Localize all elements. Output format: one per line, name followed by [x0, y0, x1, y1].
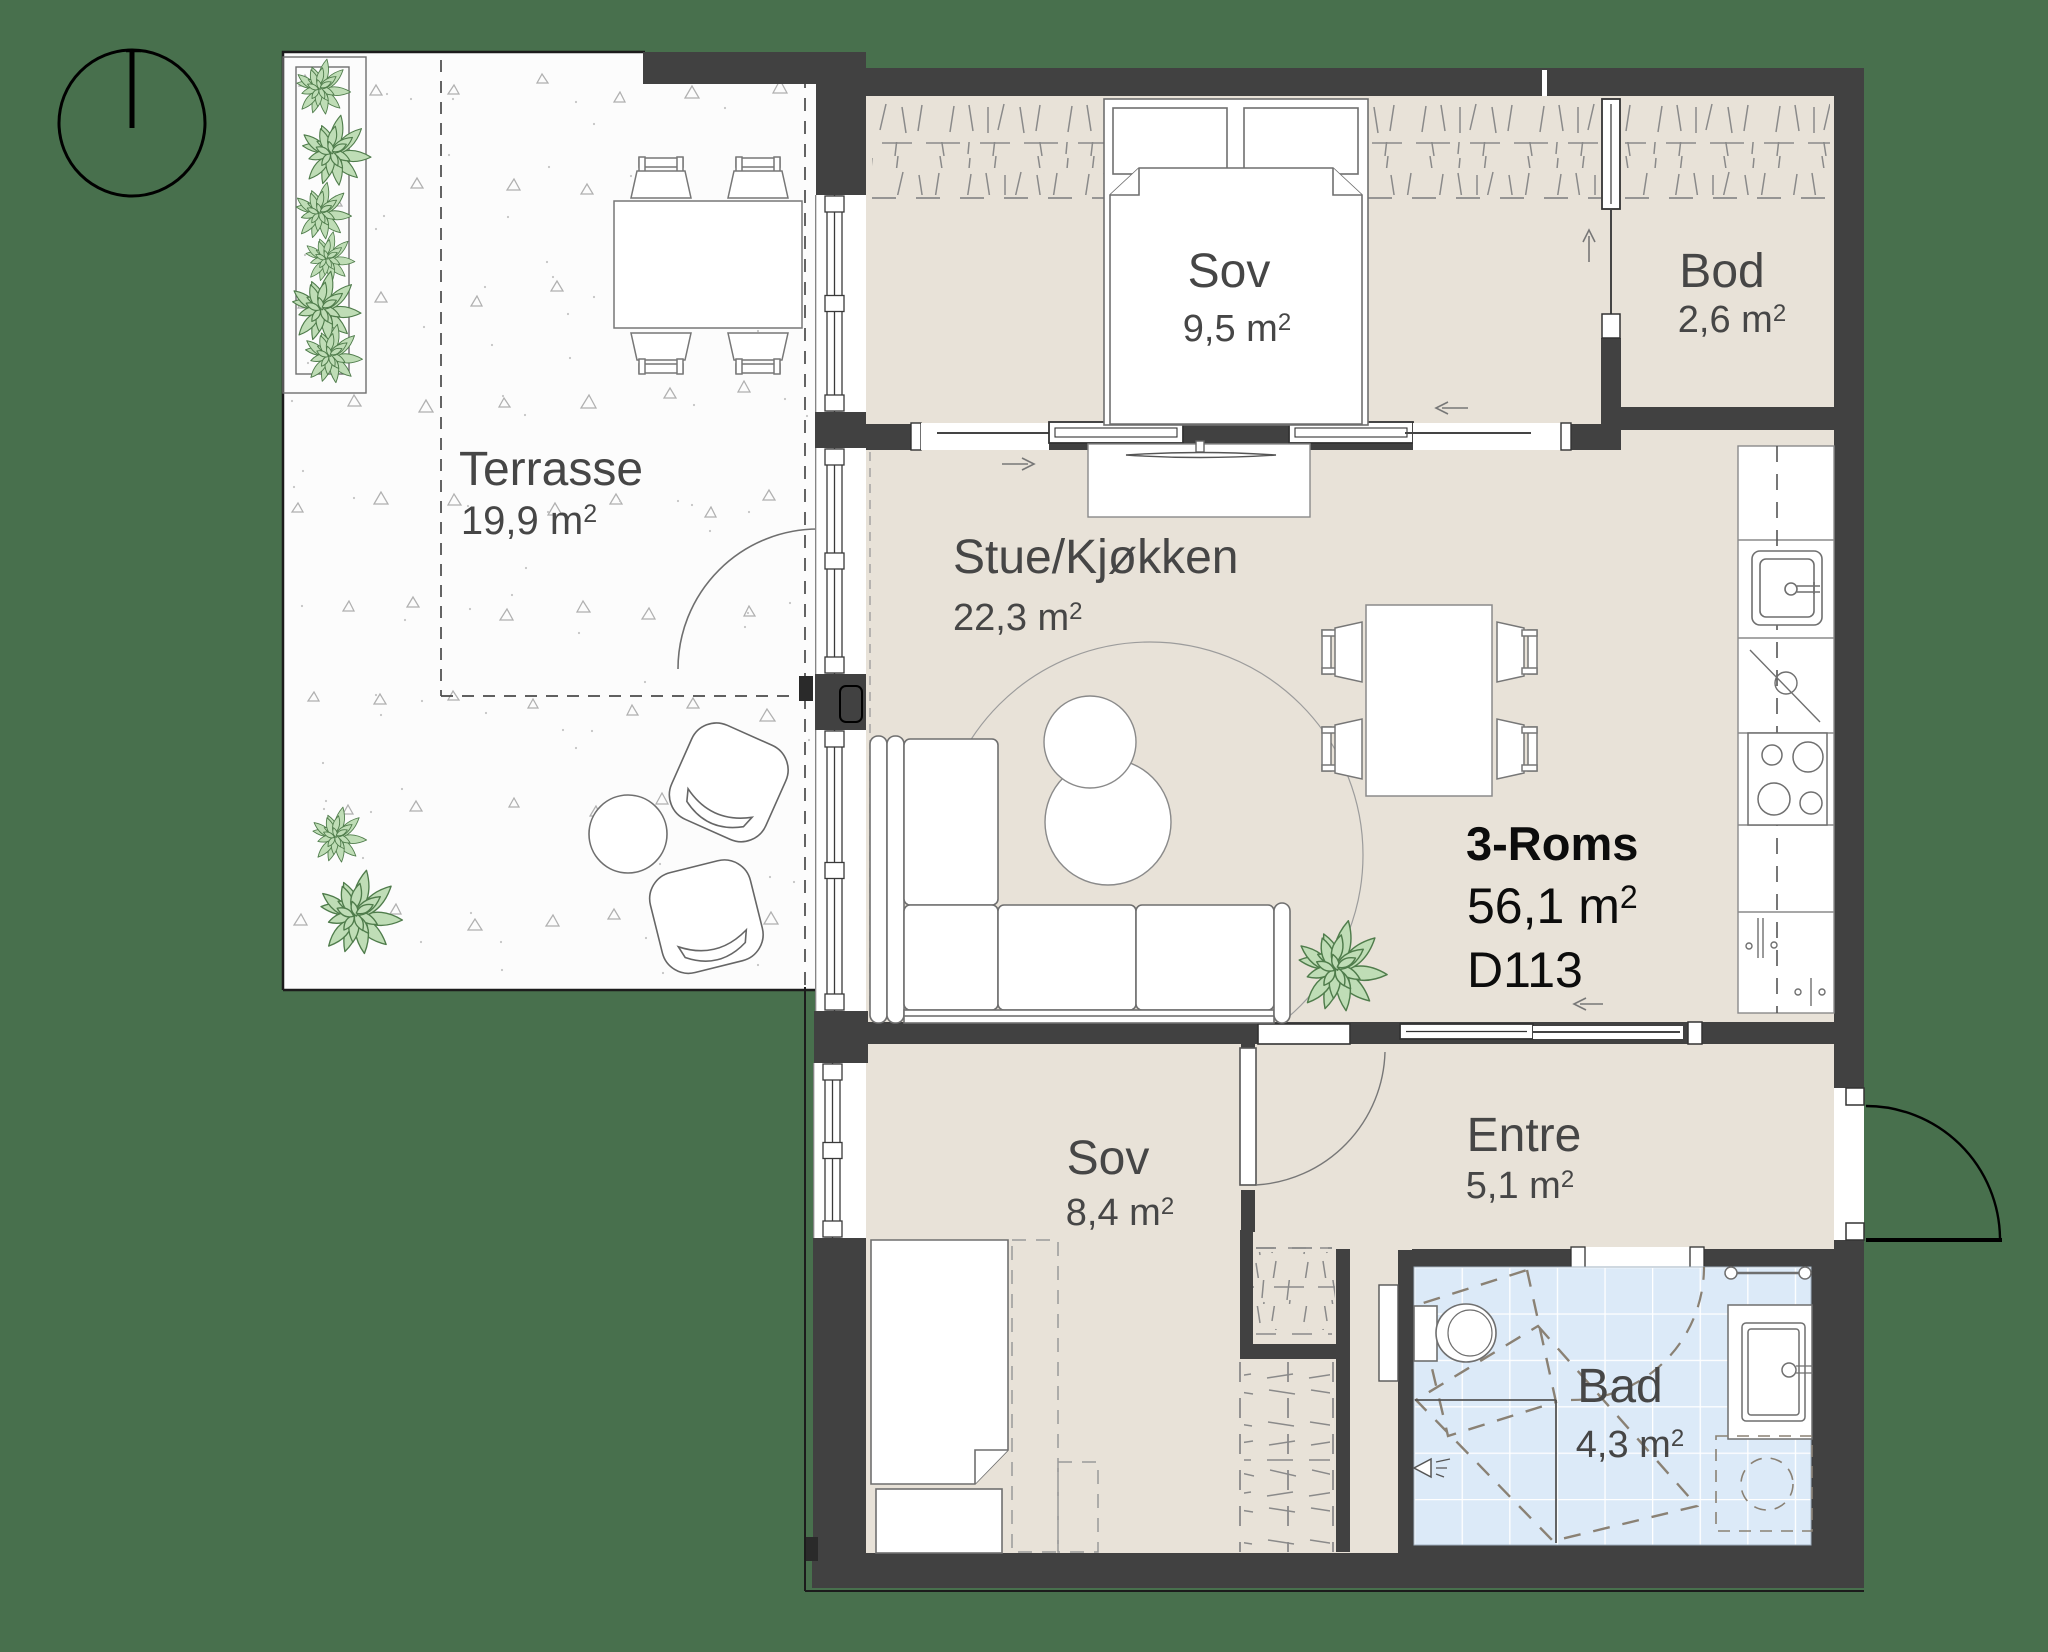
svg-text:Bod: Bod [1679, 245, 1764, 298]
svg-text:Sov: Sov [1188, 245, 1271, 298]
svg-text:22,3 m2: 22,3 m2 [953, 597, 1083, 639]
svg-text:8,4 m2: 8,4 m2 [1066, 1192, 1174, 1234]
svg-text:Terrasse: Terrasse [459, 443, 643, 496]
svg-text:Stue/Kjøkken: Stue/Kjøkken [953, 531, 1238, 584]
svg-text:19,9 m2: 19,9 m2 [461, 499, 597, 543]
svg-text:56,1 m2: 56,1 m2 [1467, 878, 1638, 934]
svg-text:D113: D113 [1467, 942, 1583, 998]
svg-text:2,6 m2: 2,6 m2 [1678, 299, 1786, 341]
svg-text:4,3 m2: 4,3 m2 [1576, 1424, 1684, 1466]
svg-text:5,1 m2: 5,1 m2 [1466, 1165, 1574, 1207]
svg-text:9,5 m2: 9,5 m2 [1183, 308, 1291, 350]
svg-text:Bad: Bad [1577, 1360, 1662, 1413]
svg-text:Entre: Entre [1467, 1109, 1582, 1162]
svg-text:Sov: Sov [1067, 1132, 1150, 1185]
svg-text:3-Roms: 3-Roms [1466, 817, 1638, 870]
